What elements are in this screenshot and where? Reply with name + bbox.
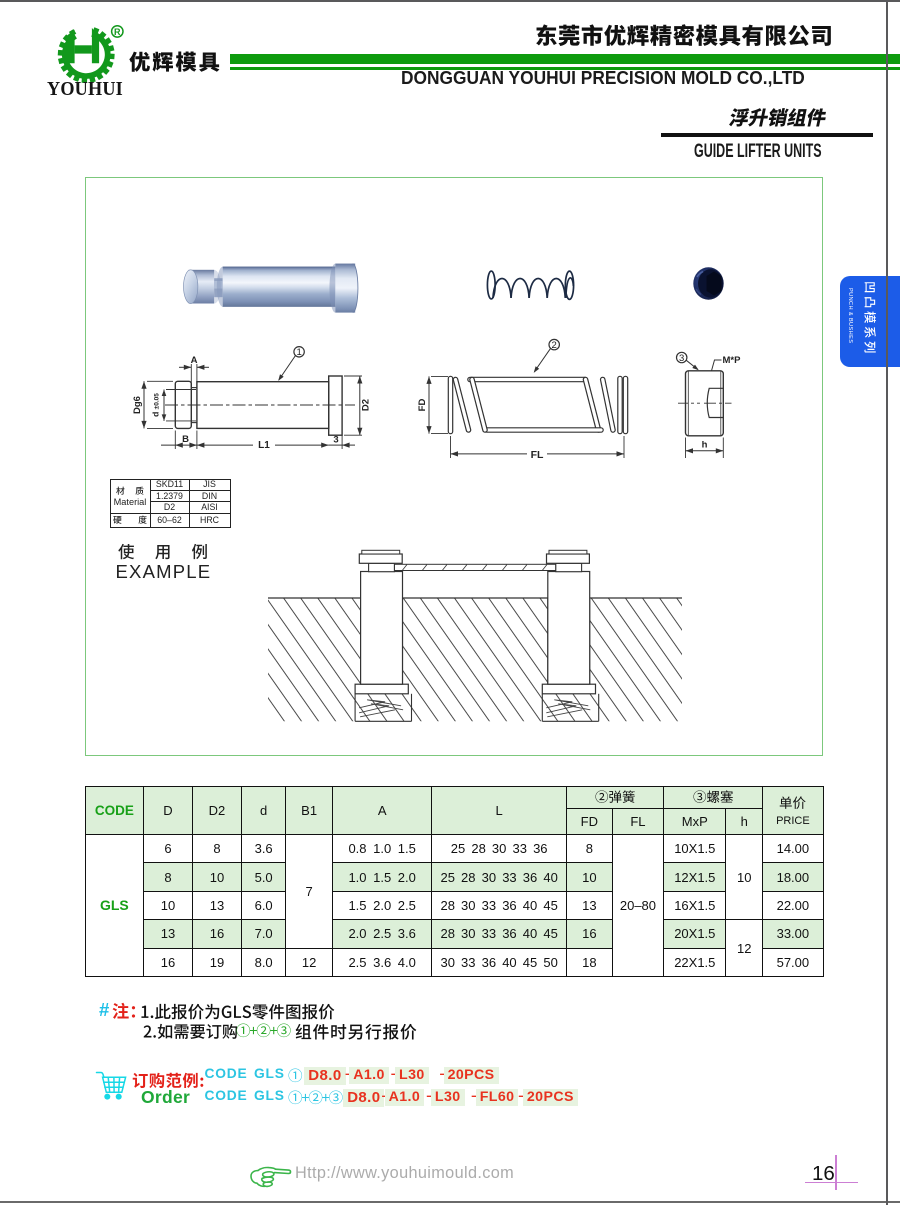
svg-text:2: 2 (552, 340, 557, 351)
svg-text:FL: FL (531, 449, 544, 461)
svg-text:M*P: M*P (723, 355, 742, 366)
svg-text:D2: D2 (361, 399, 372, 411)
svg-text:Dg6: Dg6 (132, 396, 143, 414)
svg-text:FD: FD (417, 399, 428, 412)
svg-text:h: h (702, 440, 708, 451)
svg-text:R: R (114, 27, 121, 37)
svg-text:1: 1 (296, 347, 301, 358)
svg-text:L1: L1 (258, 440, 270, 451)
svg-text:3: 3 (679, 353, 684, 364)
svg-text:d ±0.05: d ±0.05 (151, 393, 161, 417)
svg-text:3: 3 (333, 435, 338, 446)
svg-text:A: A (191, 355, 198, 366)
svg-text:B: B (182, 434, 189, 445)
